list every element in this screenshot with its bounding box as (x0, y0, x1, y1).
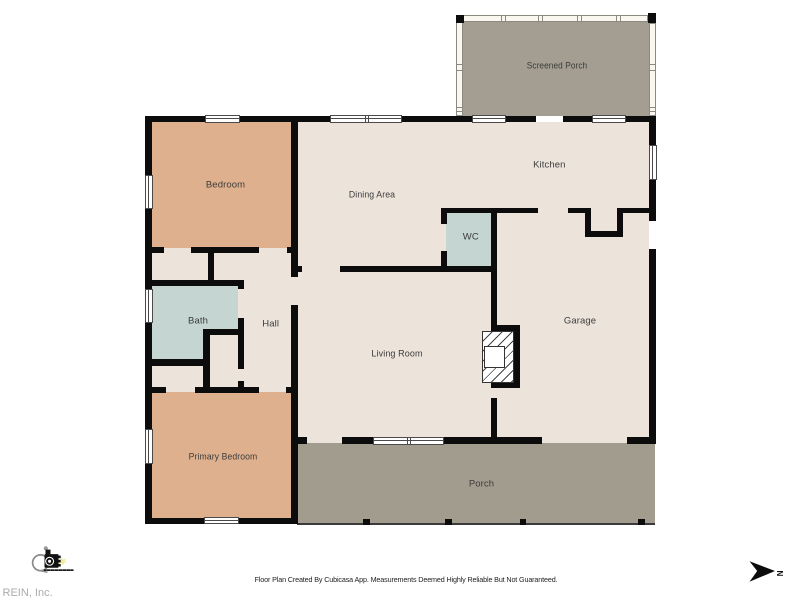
svg-text:N: N (775, 571, 784, 577)
